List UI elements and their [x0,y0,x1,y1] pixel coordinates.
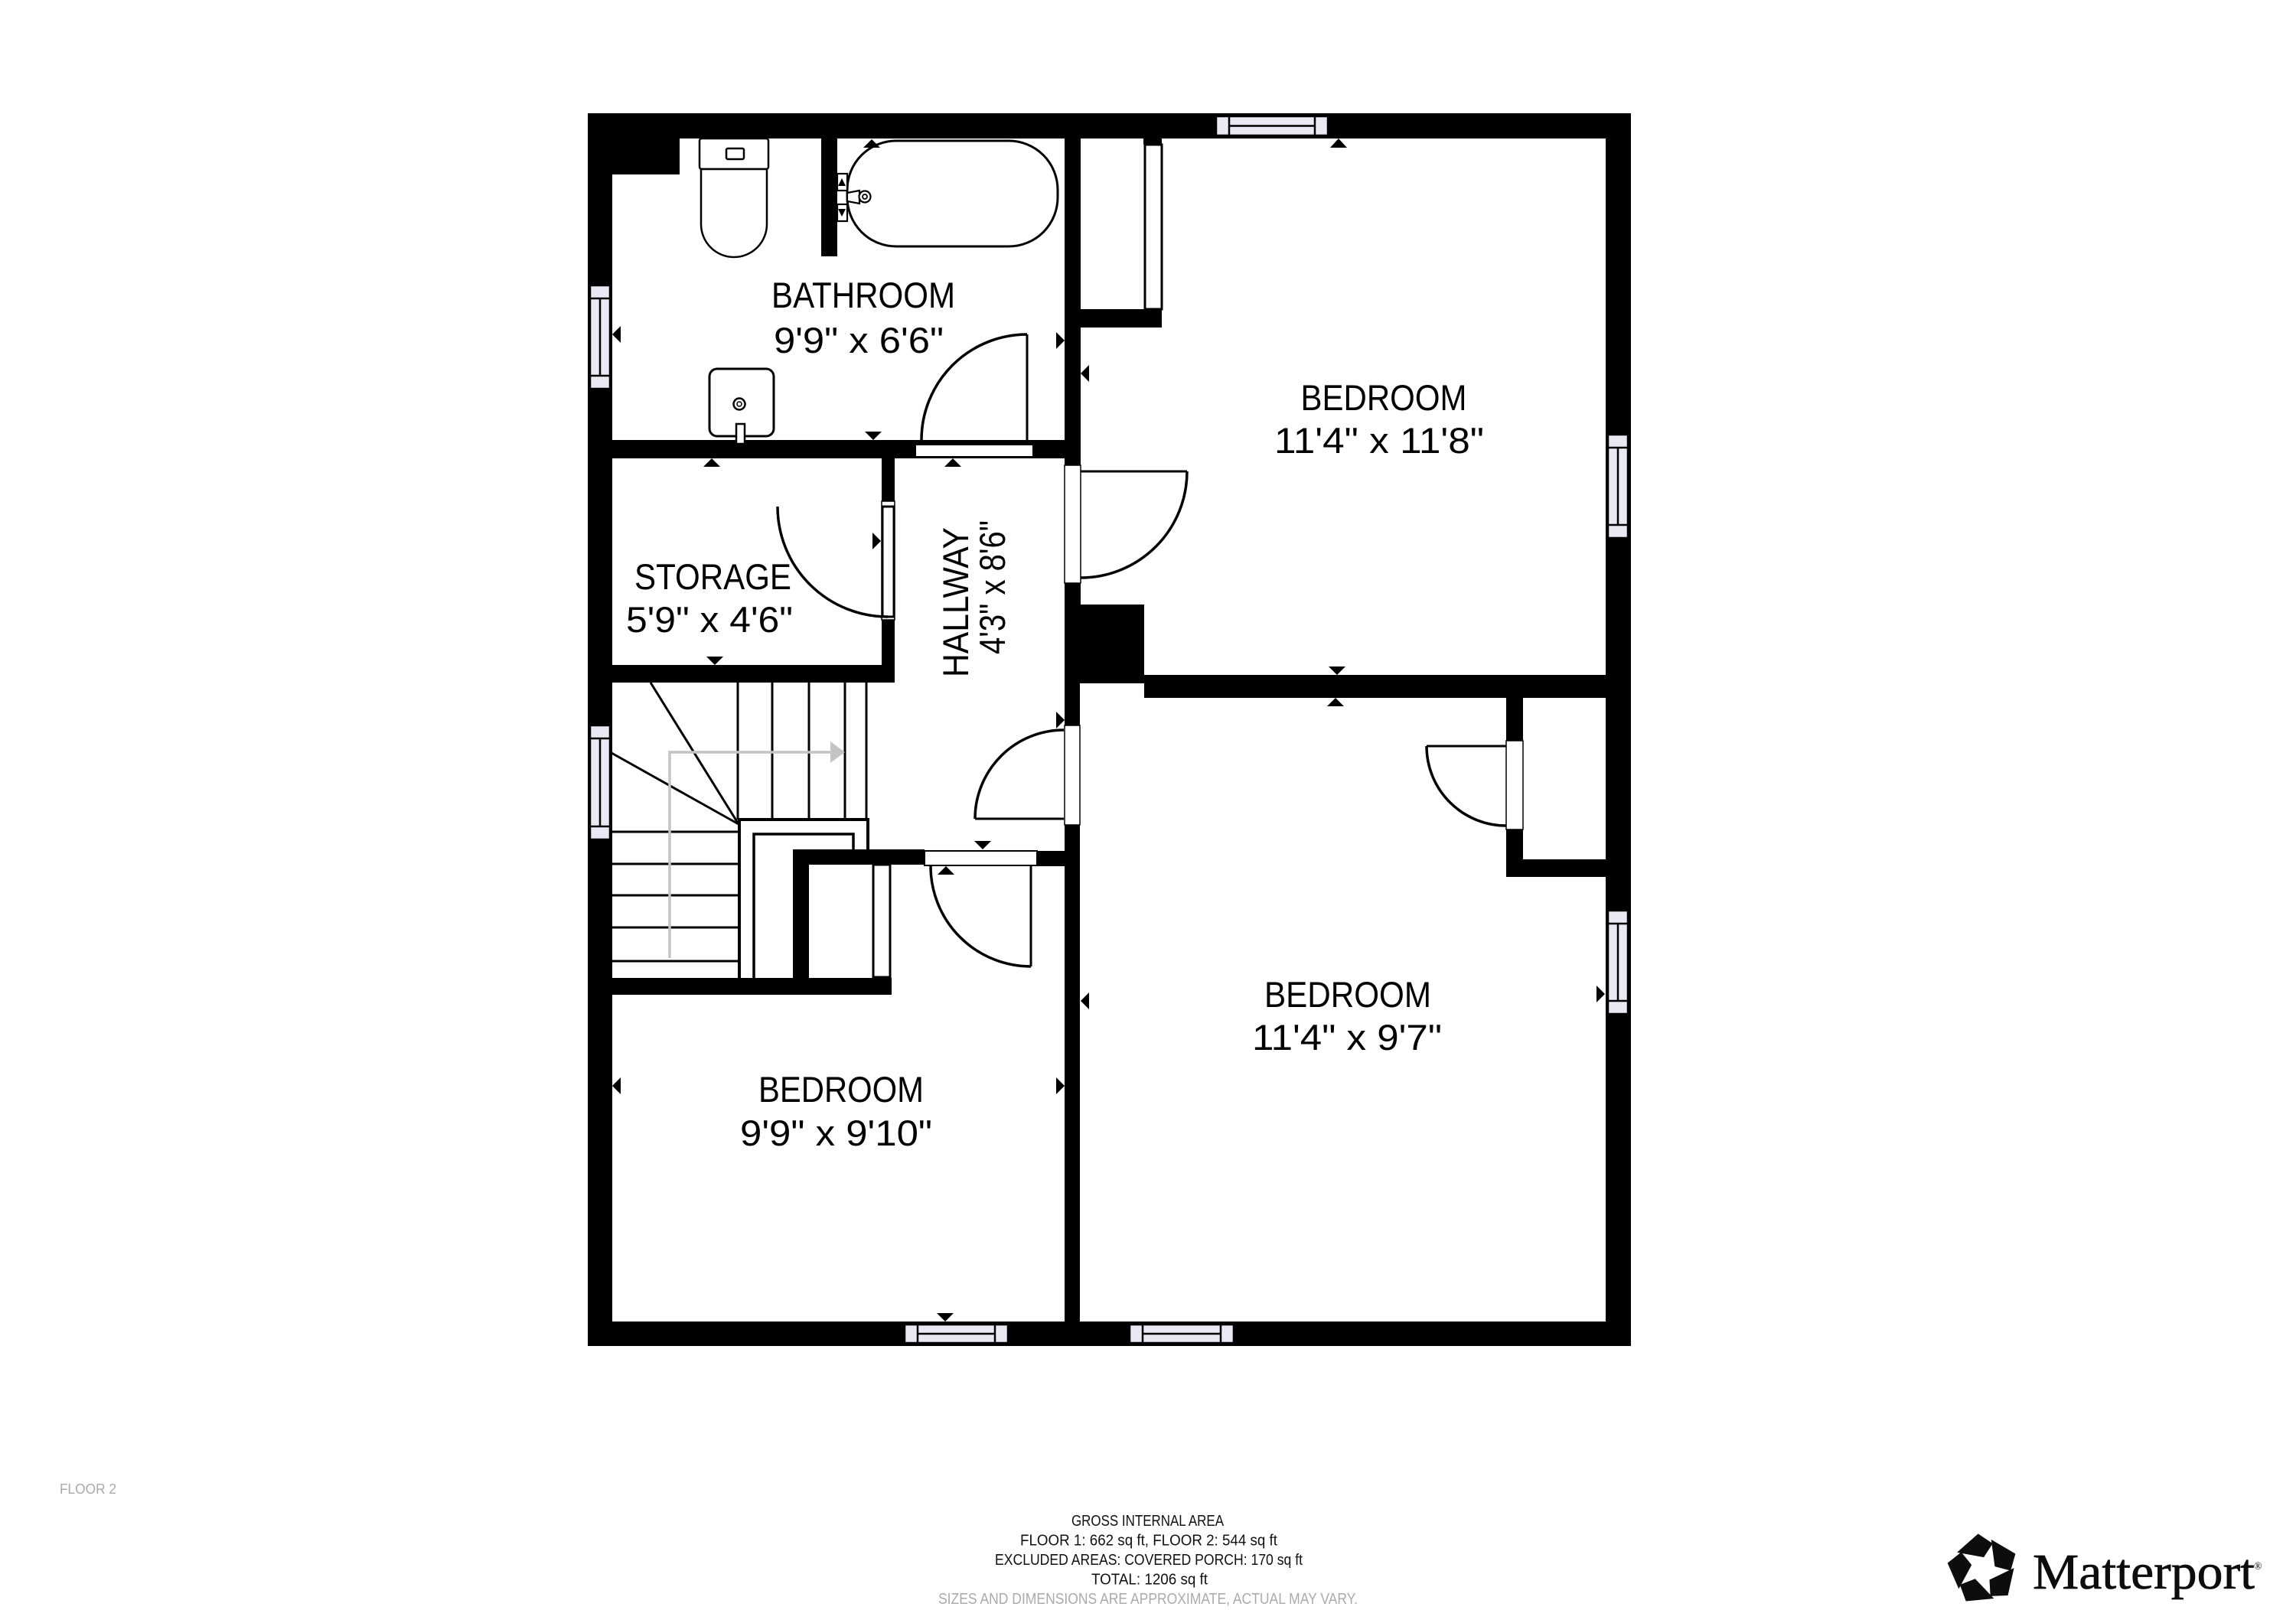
svg-text:HALLWAY: HALLWAY [936,527,977,677]
svg-text:5'9" x 4'6": 5'9" x 4'6" [626,600,793,640]
svg-text:Matterport: Matterport [2033,1544,2255,1600]
svg-text:TOTAL: 1206 sq ft: TOTAL: 1206 sq ft [1091,1572,1208,1589]
svg-text:EXCLUDED AREAS: COVERED PORCH:: EXCLUDED AREAS: COVERED PORCH: 170 sq ft [995,1552,1303,1569]
svg-text:FLOOR 1: 662 sq ft, FLOOR 2: 5: FLOOR 1: 662 sq ft, FLOOR 2: 544 sq ft [1020,1533,1277,1550]
svg-text:SIZES AND DIMENSIONS ARE APPRO: SIZES AND DIMENSIONS ARE APPROXIMATE, AC… [938,1591,1358,1608]
svg-text:BEDROOM: BEDROOM [1264,975,1431,1015]
svg-text:FLOOR 2: FLOOR 2 [60,1481,116,1497]
svg-text:11'4" x 11'8": 11'4" x 11'8" [1274,421,1484,461]
svg-text:GROSS INTERNAL AREA: GROSS INTERNAL AREA [1071,1513,1225,1530]
svg-text:STORAGE: STORAGE [634,557,791,598]
svg-text:11'4" x 9'7": 11'4" x 9'7" [1252,1018,1442,1058]
svg-text:9'9" x 6'6": 9'9" x 6'6" [774,321,944,361]
svg-text:4'3" x 8'6": 4'3" x 8'6" [973,520,1013,654]
svg-text:BEDROOM: BEDROOM [1301,378,1467,419]
svg-text:BATHROOM: BATHROOM [771,275,955,316]
svg-text:®: ® [2254,1561,2262,1572]
svg-text:BEDROOM: BEDROOM [758,1070,924,1110]
svg-text:9'9" x 9'10": 9'9" x 9'10" [740,1113,932,1154]
